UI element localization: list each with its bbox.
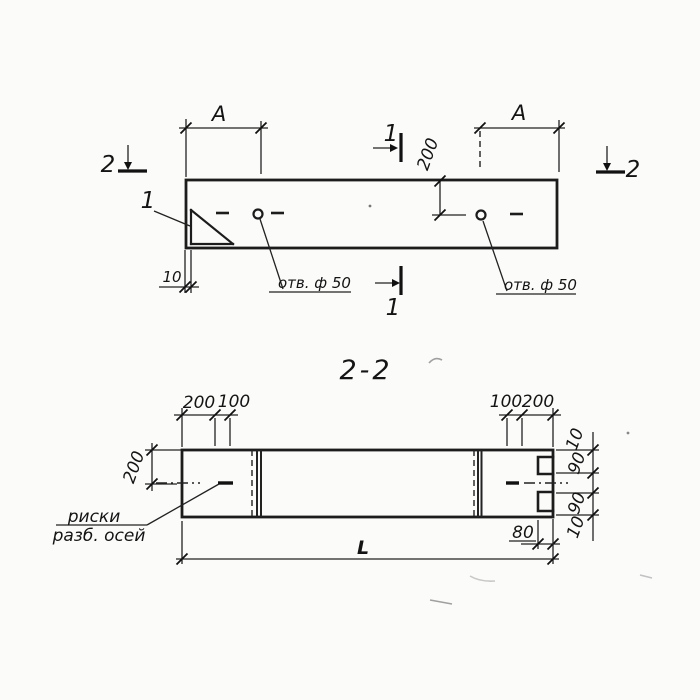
section-dim-side-200: 200 [119,443,181,491]
callout-1-label: 1 [141,188,156,214]
dim-200-value: 200 [522,392,554,412]
section-axis-note: риски разб. осей [52,484,219,546]
plan-view: 1 отв. ф 50 отв. ф 50 A [101,101,641,321]
note-line-2: разб. осей [52,526,146,546]
section-mark-1-bottom: 1 [375,266,401,321]
dim-100-value: 100 [218,392,250,412]
dim-200-value: 200 [413,136,443,173]
plan-gusset-callout: 1 [141,188,190,226]
mark-1-label: 1 [386,295,401,321]
dim-10-value: 10 [562,426,588,453]
dim-100-value: 100 [490,392,522,412]
hole-diameter-label: отв. ф 50 [278,274,351,292]
section-mark-2-right: 2 [596,146,640,183]
section-title: 2-2 [339,355,392,386]
section-dim-top-left: 200 100 [174,392,250,447]
dim-a-left-value: A [210,102,226,126]
section-notches [538,457,553,511]
plan-dim-a-right: A [474,101,565,172]
dim-90-value: 90 [564,490,590,517]
section-dim-top-right: 100 200 [490,392,561,447]
dim-80-value: 80 [512,523,534,543]
drawing-sheet: 1 отв. ф 50 отв. ф 50 A [0,0,700,700]
dim-10-value: 10 [563,514,589,541]
plan-holes [216,210,523,220]
dim-200-value: 200 [183,393,215,413]
plan-hole-right [477,211,486,220]
hole-diameter-label: отв. ф 50 [504,276,577,294]
section-mark-1-top: 1 [373,121,401,162]
mark-1-label: 1 [384,121,399,147]
plan-end-gusset [191,210,233,244]
section-arrow-down [603,163,611,171]
mark-2-label: 2 [101,152,116,178]
section-beam-outline [182,450,553,517]
section-joint-left [252,450,261,517]
section-view: 2-2 [52,355,599,565]
plan-dim-10: 10 [159,250,199,293]
section-dim-length: L [176,519,559,565]
section-dim-chain-right: 10 90 90 10 [556,426,599,541]
plan-dim-200: 200 [413,136,466,221]
section-mark-2-left: 2 [101,145,147,178]
note-line-1: риски [67,507,121,527]
plan-hole-left [254,210,263,219]
mark-2-label: 2 [626,157,641,183]
technical-drawing-svg: 1 отв. ф 50 отв. ф 50 A [0,0,700,700]
section-arrow-right [392,279,400,287]
plan-hole-label-right: отв. ф 50 [483,221,577,294]
dim-10-value: 10 [162,268,181,286]
dim-length-value: L [357,537,369,559]
section-arrow-down [124,162,132,170]
plan-hole-label-left: отв. ф 50 [260,219,351,292]
dim-200-value: 200 [119,449,149,486]
dim-a-right-value: A [510,101,526,125]
plan-dim-a-left: A [179,102,268,177]
section-joint-right [474,450,482,517]
plan-beam-outline [186,180,557,248]
